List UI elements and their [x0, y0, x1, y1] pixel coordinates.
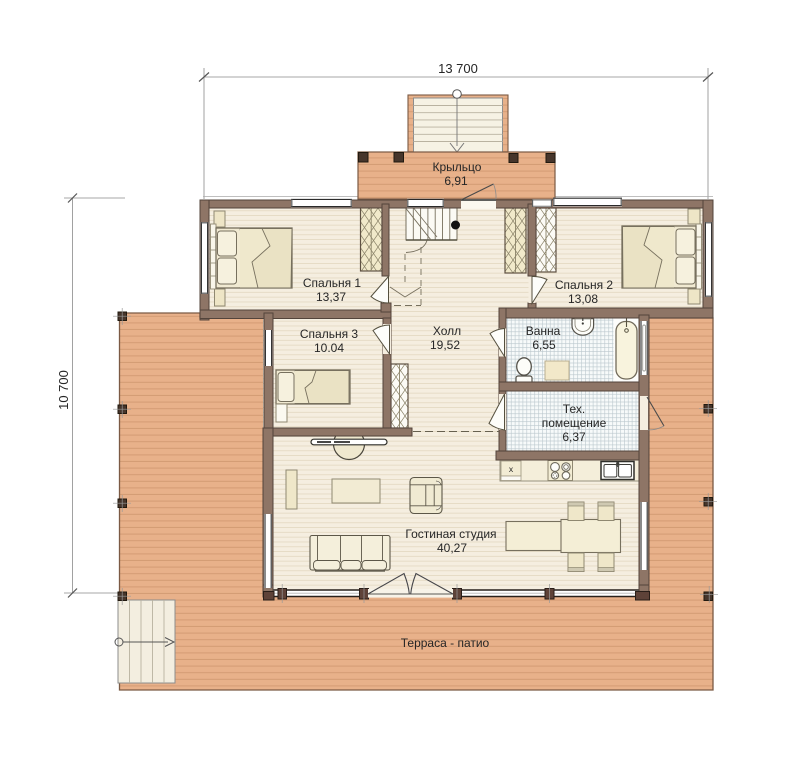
- svg-text:Терраса - патио: Терраса - патио: [401, 636, 490, 650]
- svg-text:Крыльцо: Крыльцо: [433, 160, 482, 174]
- svg-text:Спальня 3: Спальня 3: [300, 327, 359, 341]
- svg-text:19,52: 19,52: [430, 338, 460, 352]
- svg-text:10 700: 10 700: [56, 370, 71, 410]
- svg-text:10.04: 10.04: [314, 341, 344, 355]
- svg-text:Холл: Холл: [433, 324, 461, 338]
- svg-text:Гостиная студия: Гостиная студия: [405, 527, 496, 541]
- svg-text:13,37: 13,37: [316, 290, 346, 304]
- svg-text:13 700: 13 700: [438, 61, 478, 76]
- svg-text:40,27: 40,27: [437, 541, 467, 555]
- svg-text:6,55: 6,55: [532, 338, 556, 352]
- svg-text:6,91: 6,91: [444, 174, 468, 188]
- svg-text:Тех.: Тех.: [563, 402, 585, 416]
- svg-text:помещение: помещение: [542, 416, 607, 430]
- svg-text:Спальня 1: Спальня 1: [303, 276, 362, 290]
- svg-text:13,08: 13,08: [568, 292, 598, 306]
- svg-text:Ванна: Ванна: [526, 324, 561, 338]
- svg-text:Спальня 2: Спальня 2: [555, 278, 614, 292]
- svg-text:6,37: 6,37: [562, 430, 586, 444]
